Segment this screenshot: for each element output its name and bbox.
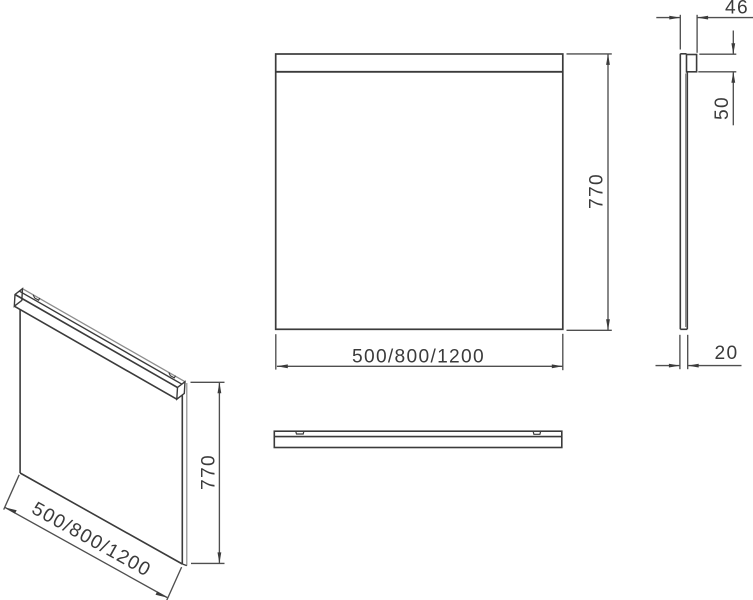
svg-text:500/800/1200: 500/800/1200 [28,498,154,581]
svg-text:500/800/1200: 500/800/1200 [352,346,485,367]
svg-text:20: 20 [715,343,739,364]
svg-text:46: 46 [725,0,749,19]
svg-text:50: 50 [712,96,733,120]
svg-text:770: 770 [198,454,219,490]
svg-text:770: 770 [587,173,608,209]
